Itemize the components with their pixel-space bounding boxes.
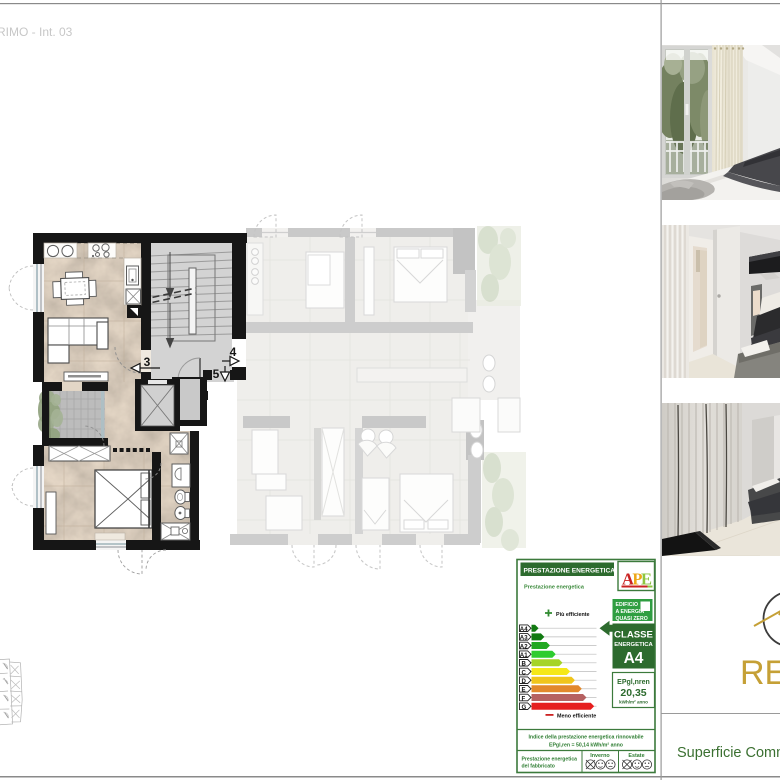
svg-text:EDIFICIO: EDIFICIO [616, 602, 638, 608]
svg-text:kWh/m² anno: kWh/m² anno [619, 700, 648, 705]
svg-text:A3: A3 [520, 635, 528, 642]
svg-text:EPgl,ren = 50,14 kWh/m² anno: EPgl,ren = 50,14 kWh/m² anno [549, 743, 623, 749]
svg-text:E: E [522, 687, 526, 694]
svg-text:EPgl,nren: EPgl,nren [617, 679, 650, 686]
svg-text:A1: A1 [520, 652, 528, 659]
svg-text:Più efficiente: Più efficiente [556, 612, 590, 618]
svg-text:CLASSE: CLASSE [614, 630, 654, 641]
svg-text:...: ... [648, 580, 651, 585]
svg-text:Indice della prestazione energ: Indice della prestazione energetica rinn… [528, 735, 643, 741]
svg-text:QUASI ZERO: QUASI ZERO [616, 616, 648, 622]
svg-text:del fabbricato: del fabbricato [522, 764, 555, 770]
svg-text:A ENERGIA: A ENERGIA [616, 609, 645, 615]
svg-text:REB: REB [740, 654, 780, 692]
svg-text:PRESTAZIONE ENERGETICA: PRESTAZIONE ENERGETICA [524, 567, 616, 574]
svg-text:Prestazione energetica: Prestazione energetica [522, 757, 578, 763]
svg-text:D: D [522, 678, 527, 685]
svg-text:20,35: 20,35 [620, 687, 646, 699]
svg-text:Meno efficiente: Meno efficiente [557, 714, 596, 720]
svg-text:G: G [522, 704, 527, 711]
svg-text:B: B [522, 661, 527, 668]
svg-text:Superficie Commerciale: Superficie Commerciale [677, 745, 780, 761]
svg-text:Estate: Estate [628, 753, 644, 759]
svg-text:A4: A4 [520, 626, 528, 633]
svg-text:F: F [522, 695, 526, 702]
svg-text:ENERGETICA: ENERGETICA [614, 642, 653, 648]
svg-text:RIMO - Int. 03: RIMO - Int. 03 [0, 25, 73, 39]
svg-text:A4: A4 [624, 650, 644, 667]
svg-text:5: 5 [213, 367, 220, 381]
svg-text:Prestazione energetica: Prestazione energetica [524, 585, 585, 591]
svg-text:Inverno: Inverno [590, 753, 610, 759]
svg-text:A2: A2 [520, 643, 528, 650]
svg-text:3: 3 [144, 355, 151, 369]
svg-text:C: C [522, 669, 527, 676]
